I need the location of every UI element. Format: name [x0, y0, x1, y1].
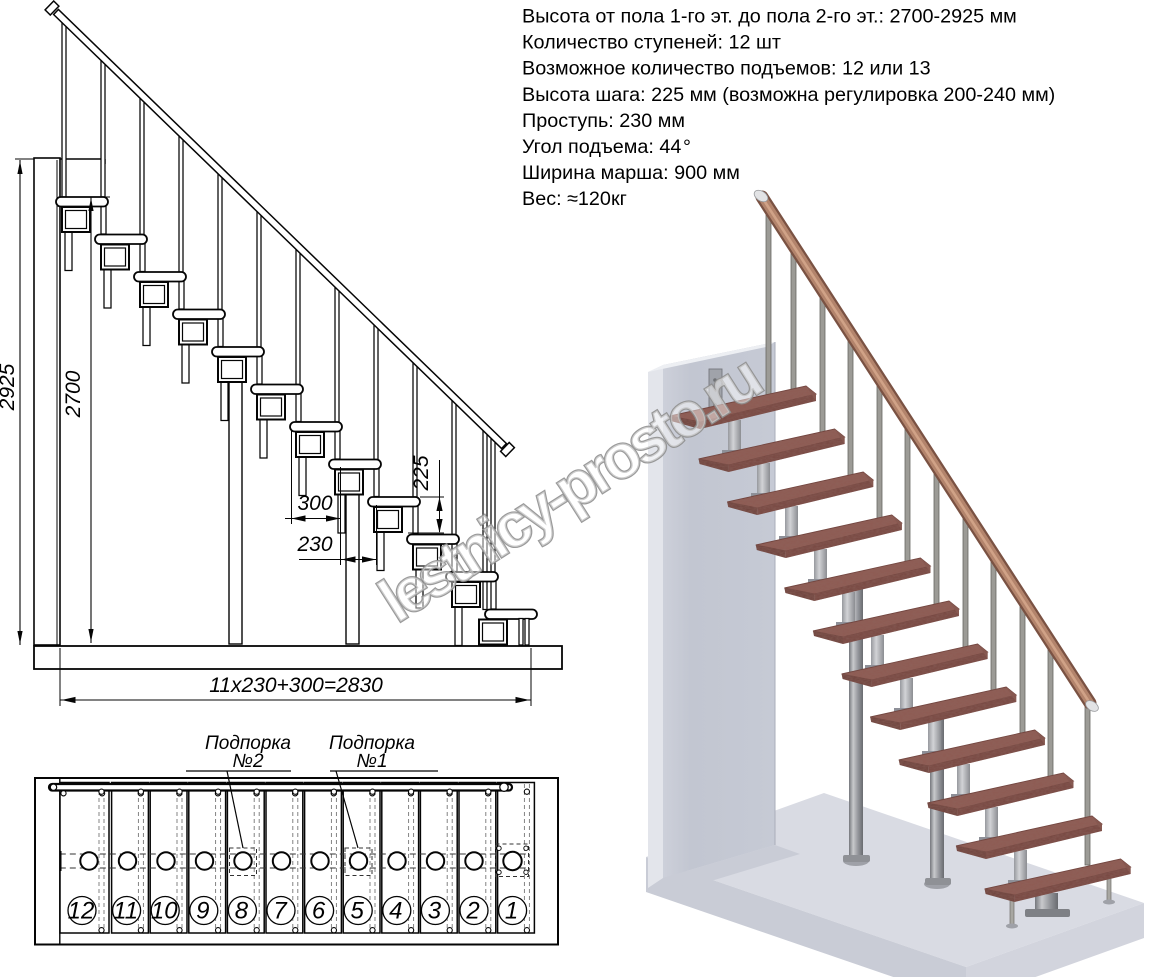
svg-text:№1: №1 [356, 751, 387, 772]
svg-text:4: 4 [389, 898, 402, 925]
svg-text:225: 225 [410, 455, 433, 491]
svg-text:2925: 2925 [0, 363, 19, 411]
svg-text:Возможное количество подъемов:: Возможное количество подъемов: 12 или 13 [522, 58, 931, 80]
svg-text:7: 7 [273, 898, 288, 925]
svg-text:10: 10 [151, 898, 178, 925]
svg-text:8: 8 [235, 898, 249, 925]
svg-text:Высота шага: 225 мм (возможна: Высота шага: 225 мм (возможна регулировк… [522, 84, 1055, 106]
svg-text:Угол подъема: 44 °: Угол подъема: 44 ° [522, 136, 691, 158]
svg-text:Высота от пола 1-го эт. до пол: Высота от пола 1-го эт. до пола 2-го эт.… [522, 6, 1017, 28]
svg-text:9: 9 [196, 898, 209, 925]
svg-text:11: 11 [113, 898, 138, 925]
svg-text:5: 5 [351, 898, 365, 925]
svg-text:300: 300 [297, 492, 332, 515]
svg-text:Проступь: 230 мм: Проступь: 230 мм [522, 110, 685, 132]
svg-text:12: 12 [68, 898, 95, 925]
svg-text:3: 3 [428, 898, 442, 925]
svg-text:Вес: ≈120кг: Вес: ≈120кг [522, 188, 627, 210]
svg-text:230: 230 [296, 533, 332, 556]
svg-text:1: 1 [505, 898, 518, 925]
svg-text:2: 2 [465, 898, 479, 925]
svg-text:№2: №2 [232, 751, 264, 772]
svg-text:2700: 2700 [62, 370, 85, 418]
svg-text:11x230+300=2830: 11x230+300=2830 [209, 674, 383, 697]
svg-text:6: 6 [312, 898, 326, 925]
svg-text:Количество ступеней: 12 шт: Количество ступеней: 12 шт [522, 32, 781, 54]
svg-text:Ширина марша: 900 мм: Ширина марша: 900 мм [522, 162, 740, 184]
